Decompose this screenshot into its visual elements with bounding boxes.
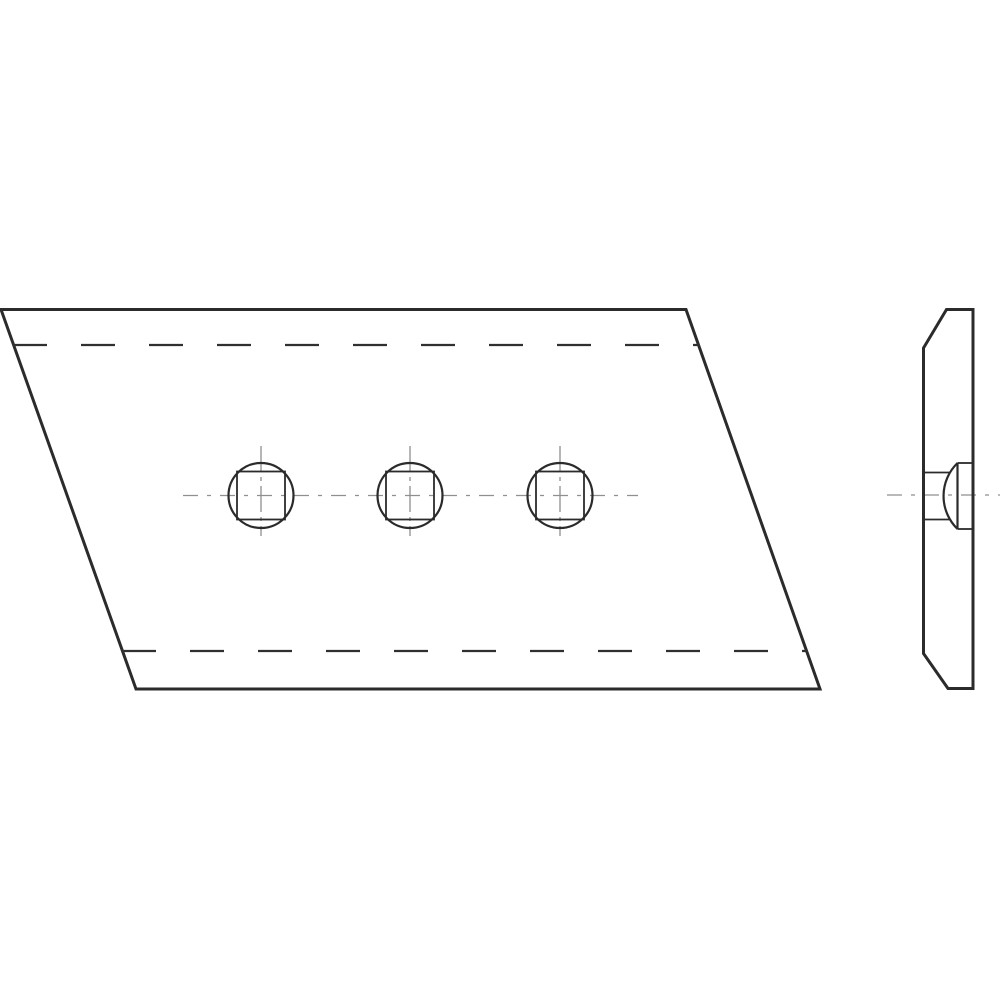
side-view-outline <box>924 310 974 689</box>
technical-drawing-page <box>0 0 1000 1000</box>
technical-drawing-canvas <box>0 0 1000 1000</box>
